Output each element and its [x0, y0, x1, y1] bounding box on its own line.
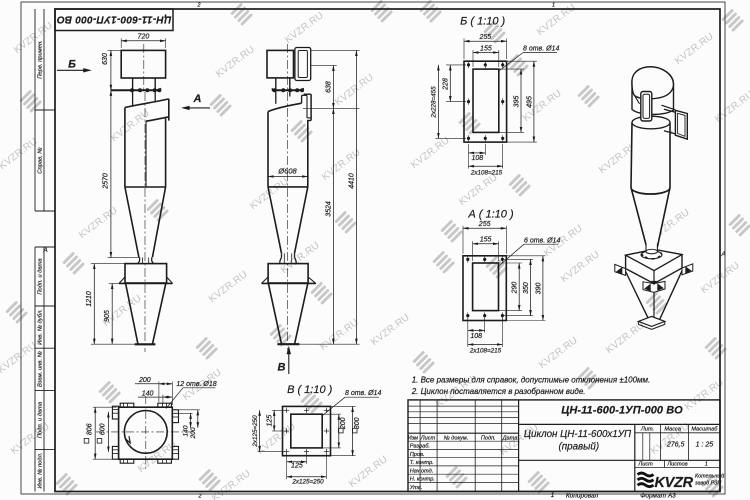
svg-text:Копировал: Копировал	[566, 493, 599, 500]
svg-text:2х108=215: 2х108=215	[469, 348, 502, 355]
svg-text:Инв. № подл.: Инв. № подл.	[38, 453, 44, 489]
svg-text:Лист: Лист	[637, 461, 653, 467]
svg-text:2. Циклон поставляется в разоб: 2. Циклон поставляется в разобранном вид…	[411, 387, 586, 396]
svg-text:1210: 1210	[86, 291, 93, 307]
svg-text:108: 108	[470, 333, 482, 340]
svg-text:Подп. и дата: Подп. и дата	[38, 258, 44, 295]
svg-text:Подп.: Подп.	[481, 435, 496, 441]
svg-text:2570: 2570	[102, 173, 109, 190]
svg-text:Масштаб: Масштаб	[691, 427, 718, 433]
svg-text:2х125=250: 2х125=250	[252, 415, 259, 448]
svg-text:1: 1	[705, 461, 708, 467]
svg-text:290: 290	[512, 282, 519, 295]
svg-text:Подп. и дата: Подп. и дата	[38, 401, 44, 438]
svg-text:Циклон ЦН-11-600х1УП: Циклон ЦН-11-600х1УП	[524, 429, 632, 440]
svg-text:А: А	[720, 251, 725, 258]
svg-text:Т. контр.: Т. контр.	[410, 460, 434, 466]
svg-text:390: 390	[535, 283, 542, 295]
svg-text:Взам. инв. №: Взам. инв. №	[38, 351, 44, 387]
svg-text:Изм: Изм	[408, 435, 419, 441]
svg-text:140: 140	[183, 425, 190, 436]
svg-text:ЦН-11-600-1УП-000 ВО: ЦН-11-600-1УП-000 ВО	[561, 405, 683, 417]
svg-text:8 отв. Ø14: 8 отв. Ø14	[523, 46, 559, 53]
svg-text:Котельный: Котельный	[695, 473, 724, 480]
svg-text:200: 200	[190, 427, 197, 439]
svg-text:720: 720	[138, 34, 150, 41]
svg-text:350: 350	[523, 282, 530, 294]
svg-text:255: 255	[478, 221, 491, 228]
svg-text:1 : 25: 1 : 25	[696, 442, 714, 449]
svg-text:Инв. № дубл.: Инв. № дубл.	[38, 309, 44, 345]
svg-text:630: 630	[102, 53, 109, 65]
svg-text:1. Все размеры для справок, до: 1. Все размеры для справок, допустимые о…	[412, 376, 651, 385]
svg-text:В: В	[278, 362, 286, 374]
svg-text:ЦН-11-600-1УП-000 ВО: ЦН-11-600-1УП-000 ВО	[57, 13, 172, 24]
svg-text:Справ. №: Справ. №	[38, 147, 44, 173]
svg-text:А: А	[42, 247, 47, 254]
svg-text:140: 140	[142, 390, 154, 397]
svg-text:2х125=250: 2х125=250	[291, 479, 324, 486]
svg-text:255: 255	[478, 34, 491, 41]
svg-text:155: 155	[480, 45, 492, 52]
svg-text:12 отв. Ø18: 12 отв. Ø18	[176, 381, 216, 388]
svg-text:(правый): (правый)	[559, 441, 600, 452]
svg-text:Н. контр.: Н. контр.	[410, 477, 435, 483]
svg-text:Масса: Масса	[664, 427, 681, 433]
svg-text:Ø608: Ø608	[277, 166, 297, 175]
svg-text:KVZR: KVZR	[655, 475, 694, 491]
svg-text:200: 200	[340, 417, 347, 430]
svg-text:125: 125	[267, 415, 274, 427]
svg-text:6 отв. Ø14: 6 отв. Ø14	[524, 237, 560, 244]
svg-text:395: 395	[513, 96, 520, 108]
svg-text:2: 2	[197, 494, 201, 500]
svg-text:638: 638	[326, 81, 333, 93]
svg-text:Утв.: Утв.	[409, 485, 423, 491]
svg-text:Б ( 1:10 ): Б ( 1:10 )	[460, 16, 505, 28]
svg-text:3524: 3524	[326, 201, 333, 217]
svg-text:2: 2	[196, 3, 200, 9]
svg-text:В ( 1:10 ): В ( 1:10 )	[287, 384, 333, 396]
svg-text:Лит.: Лит.	[640, 427, 654, 433]
svg-text:155: 155	[480, 237, 492, 244]
svg-text:Нач.отд.: Нач.отд.	[410, 468, 434, 474]
svg-text:1: 1	[551, 492, 555, 499]
svg-text:600: 600	[100, 423, 107, 435]
svg-text:завод РЗП: завод РЗП	[694, 481, 721, 487]
svg-text:300: 300	[354, 417, 361, 429]
svg-text:Перв. примен.: Перв. примен.	[38, 40, 44, 79]
svg-text:125: 125	[291, 462, 303, 469]
svg-text:495: 495	[526, 96, 533, 108]
svg-text:№ докум.: № докум.	[444, 435, 469, 441]
svg-text:Б: Б	[68, 59, 76, 71]
svg-text:Разраб.: Разраб.	[410, 444, 430, 450]
svg-text:276,5: 276,5	[666, 442, 685, 449]
svg-text:1: 1	[552, 3, 555, 9]
svg-text:4410: 4410	[349, 173, 356, 189]
svg-text:200: 200	[138, 377, 151, 384]
svg-text:2х108=215: 2х108=215	[470, 170, 503, 177]
svg-text:Формат А3: Формат А3	[640, 493, 676, 500]
svg-text:806: 806	[87, 423, 94, 435]
svg-text:905: 905	[104, 310, 111, 322]
svg-text:А ( 1:10 ): А ( 1:10 )	[467, 209, 514, 221]
svg-text:Дата: Дата	[502, 435, 518, 441]
svg-text:8 отв. Ø14: 8 отв. Ø14	[345, 390, 381, 397]
svg-text:Пров.: Пров.	[410, 452, 425, 458]
svg-text:2х228=455: 2х228=455	[431, 86, 438, 119]
svg-text:А: А	[193, 93, 202, 105]
svg-text:Лист: Лист	[420, 435, 436, 441]
svg-text:228: 228	[443, 78, 450, 91]
svg-text:108: 108	[471, 155, 483, 162]
svg-text:Листов: Листов	[666, 461, 687, 467]
